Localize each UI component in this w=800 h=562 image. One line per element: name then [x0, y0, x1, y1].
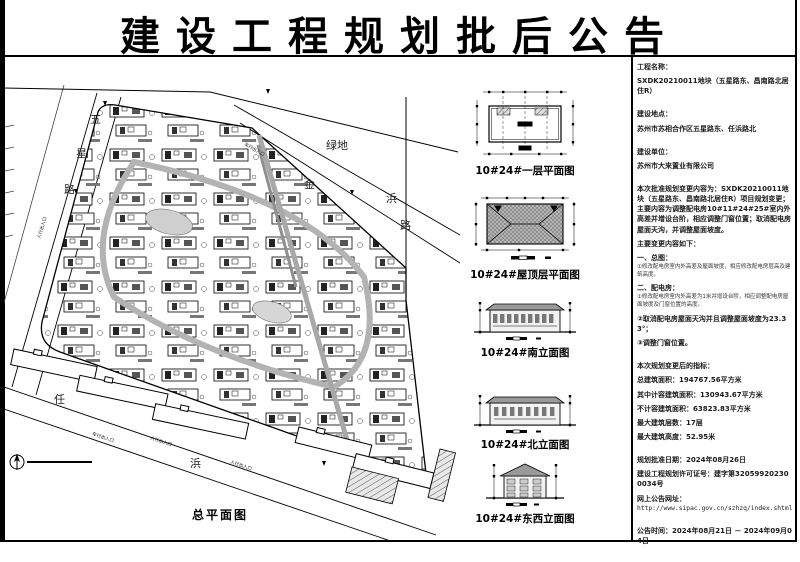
svg-text:路: 路 — [400, 219, 411, 232]
section2-item3: ③调整门窗位置。 — [637, 338, 793, 348]
svg-text:任: 任 — [54, 393, 65, 406]
north-elevation-drawing — [460, 388, 590, 436]
svg-text:金: 金 — [304, 177, 315, 191]
svg-text:路: 路 — [64, 183, 75, 196]
figure-roof-plan: 10#24#屋顶层平面图 — [463, 192, 587, 282]
section1-title: 一、总图： — [637, 253, 793, 263]
panel-divider-line — [631, 57, 633, 540]
svg-text:五: 五 — [90, 113, 101, 126]
eastwest-elevation-drawing — [468, 456, 582, 510]
figure-north-elevation: 10#24#北立面图 — [458, 388, 592, 452]
page-title: 建设工程规划批后公告 — [0, 4, 800, 62]
section2-item2: ②取消配电房屋面天沟并且调整屋面坡度为23.33°； — [637, 314, 793, 334]
green-area-label: 绿地 — [326, 138, 348, 152]
indicator-max-height: 最大建筑高度：52.95米 — [637, 432, 793, 442]
url-label: 网上公告网址： — [637, 494, 793, 504]
floor-plan-drawing — [465, 84, 585, 162]
permit-number: 建设工程规划许可证号：建字第320599202300034号 — [637, 469, 793, 489]
right-border-line — [795, 0, 797, 542]
section2-title: 二、配电房： — [637, 283, 793, 293]
indicator-uncounted-area: 不计容建筑面积：63823.83平方米 — [637, 404, 793, 414]
location: 苏州市苏相合作区五星路东、任浜路北 — [637, 124, 793, 134]
svg-text:浜: 浜 — [190, 457, 201, 470]
south-elevation-drawing — [460, 294, 590, 344]
project-name: SXDK20210011地块（五星路东、昌南路北居住R） — [637, 76, 793, 96]
notice-url: http://www.sipac.gov.cn/szhzq/index.shtm… — [637, 504, 793, 513]
changes-heading: 主要变更内容如下： — [637, 239, 793, 249]
entrance-label-ped-west: 人行出入口 — [35, 216, 48, 240]
site-plan-drawing: 五 星 路 金 浜 路 绿地 任 浜 车行出入口 人行出入口 车行出入口 人行出… — [4, 57, 464, 541]
roof-plan-drawing — [465, 192, 585, 266]
indicator-max-floors: 最大建筑层数：17层 — [637, 418, 793, 428]
indicator-total-area: 总建筑面积：194767.56平方米 — [637, 375, 793, 385]
north-arrow — [10, 454, 92, 470]
section1-item1: ①修改配电房室内外高差及屋面坡度，相应修改配电房层高及建筑高度。 — [637, 264, 793, 279]
project-name-label: 工程名称： — [637, 62, 793, 72]
svg-text:浜: 浜 — [386, 192, 397, 205]
entrance-label-vehicle-south: 车行出入口 — [91, 430, 115, 444]
figure-south-elevation: 10#24#南立面图 — [458, 294, 592, 360]
indicator-counted-area: 其中计容建筑面积：130943.67平方米 — [637, 390, 793, 400]
approval-date: 规划批准日期：2024年08月26日 — [637, 455, 793, 465]
figure-eastwest-elevation-caption: 10#24#东西立面图 — [475, 511, 574, 526]
figure-roof-plan-caption: 10#24#屋顶层平面图 — [470, 267, 580, 282]
info-panel: 工程名称： SXDK20210011地块（五星路东、昌南路北居住R） 建设地点：… — [637, 62, 793, 550]
notice-poster: 建设工程规划批后公告 — [0, 0, 800, 562]
svg-text:星: 星 — [76, 147, 87, 160]
figure-eastwest-elevation: 10#24#东西立面图 — [466, 456, 584, 526]
figure-floor-plan-caption: 10#24#一层平面图 — [475, 163, 574, 178]
section2-item1: ①修改配电房室内外高差为1米并增设台阶，相应调整配电房屋面坡度及门窗位置的高度。 — [637, 294, 793, 309]
builder: 苏州市大来置业有限公司 — [637, 161, 793, 171]
figure-south-elevation-caption: 10#24#南立面图 — [481, 345, 570, 360]
indicators-heading: 本次规划变更后的指标： — [637, 361, 793, 371]
site-plan-caption: 总平面图 — [150, 506, 290, 523]
location-label: 建设地点： — [637, 109, 793, 119]
figure-north-elevation-caption: 10#24#北立面图 — [481, 437, 570, 452]
road-label-renbang: 任 浜 — [54, 393, 201, 470]
entrance-label-ped-south2: 人行出入口 — [229, 458, 253, 472]
entrance-label-ped-south: 人行出入口 — [149, 434, 173, 448]
change-paragraph: 本次批准规划变更内容为：SXDK20210011地块（五星路东、昌南路北居住R）… — [637, 184, 793, 235]
figure-floor-plan: 10#24#一层平面图 — [463, 84, 587, 178]
notice-period: 公告时间：2024年08月21日 － 2024年09月04日 — [637, 526, 793, 546]
builder-label: 建设单位： — [637, 147, 793, 157]
